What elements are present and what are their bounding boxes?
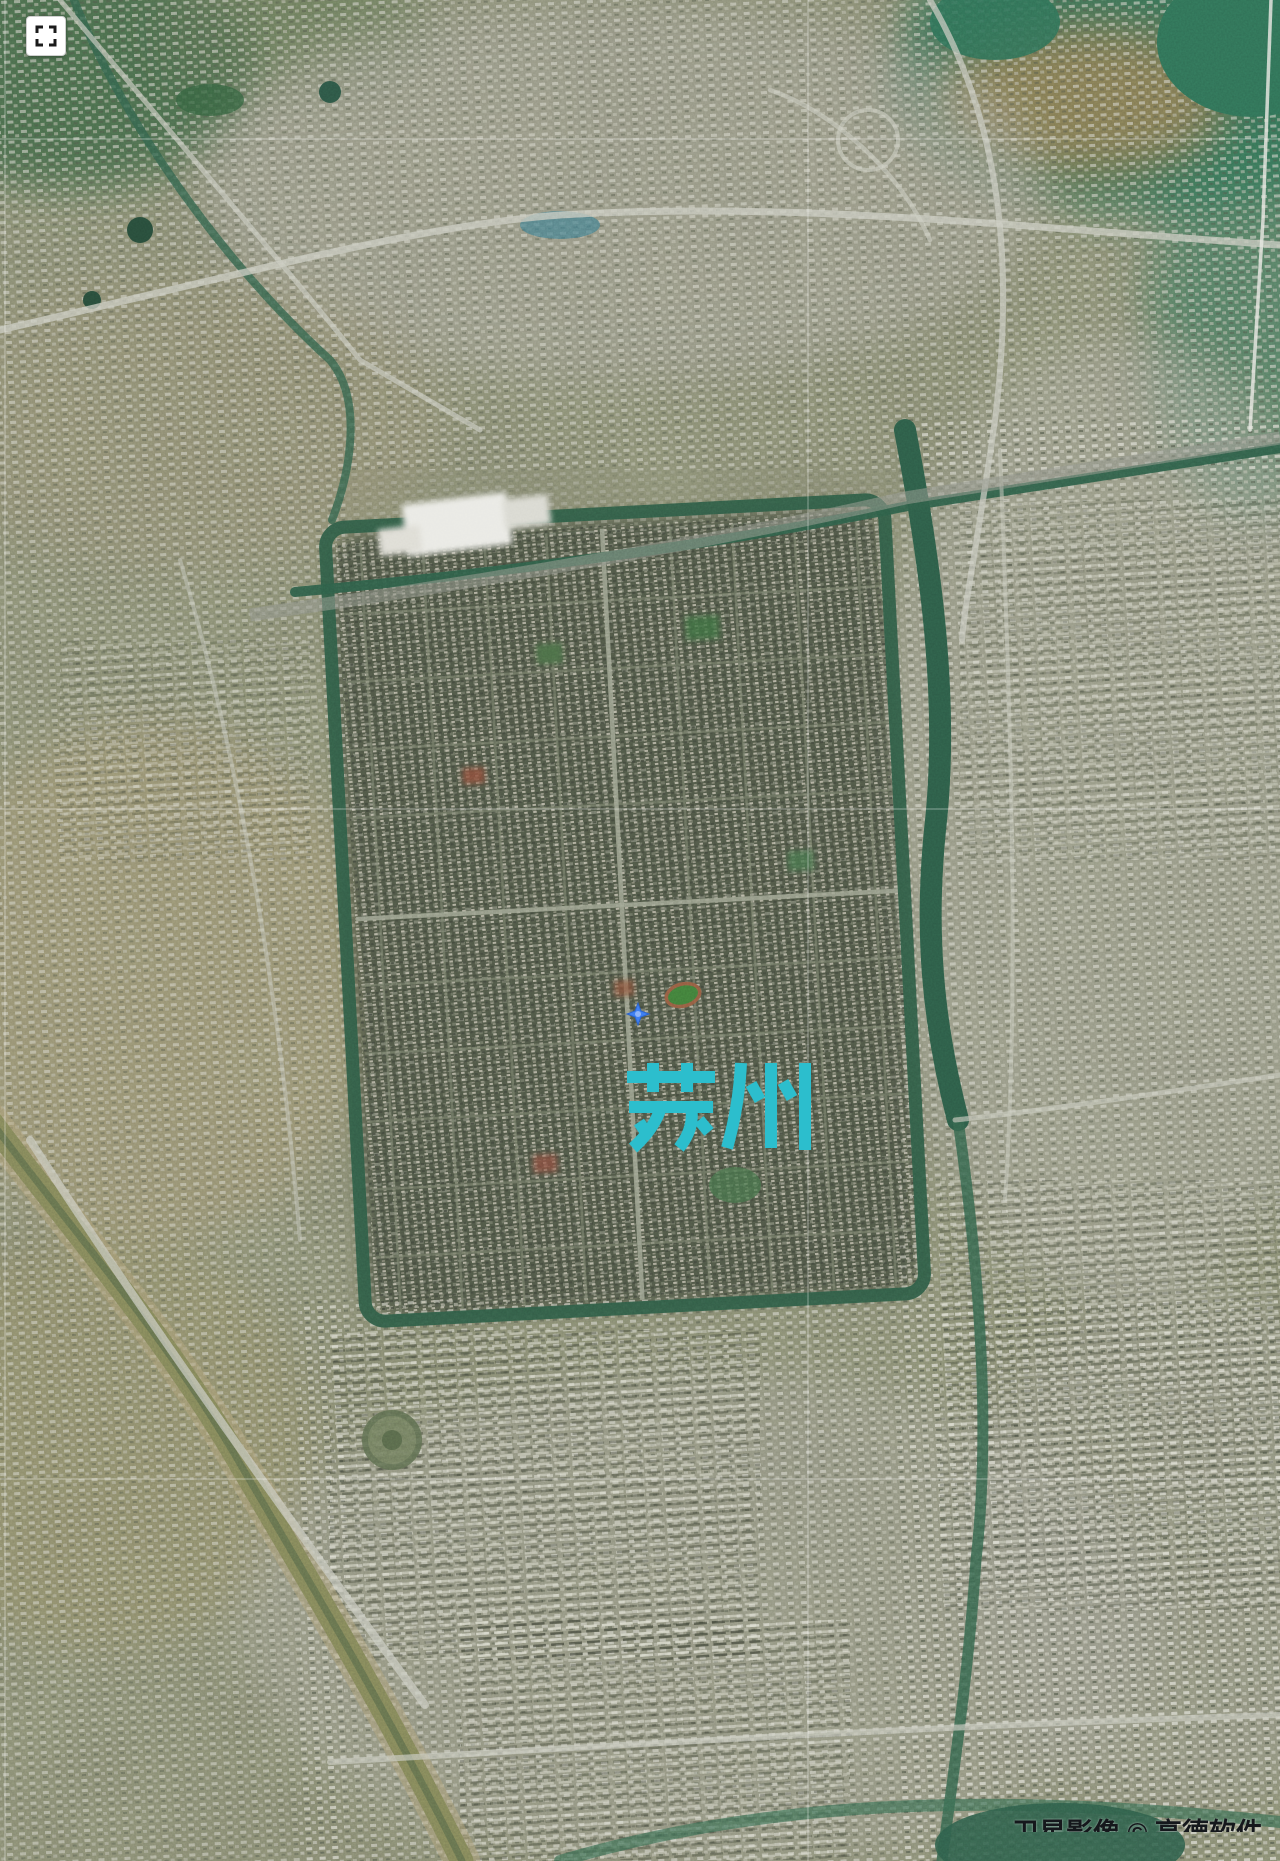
satellite-imagery: [0, 0, 1280, 1861]
map-viewport[interactable]: 苏州 卫星影像 © 高德软件: [0, 0, 1280, 1861]
fullscreen-button[interactable]: [26, 16, 66, 56]
fullscreen-expand-icon: [35, 25, 57, 47]
map-attribution: 卫星影像 © 高德软件: [1012, 1818, 1280, 1832]
map-attribution-text: 卫星影像 © 高德软件: [1012, 1818, 1280, 1832]
